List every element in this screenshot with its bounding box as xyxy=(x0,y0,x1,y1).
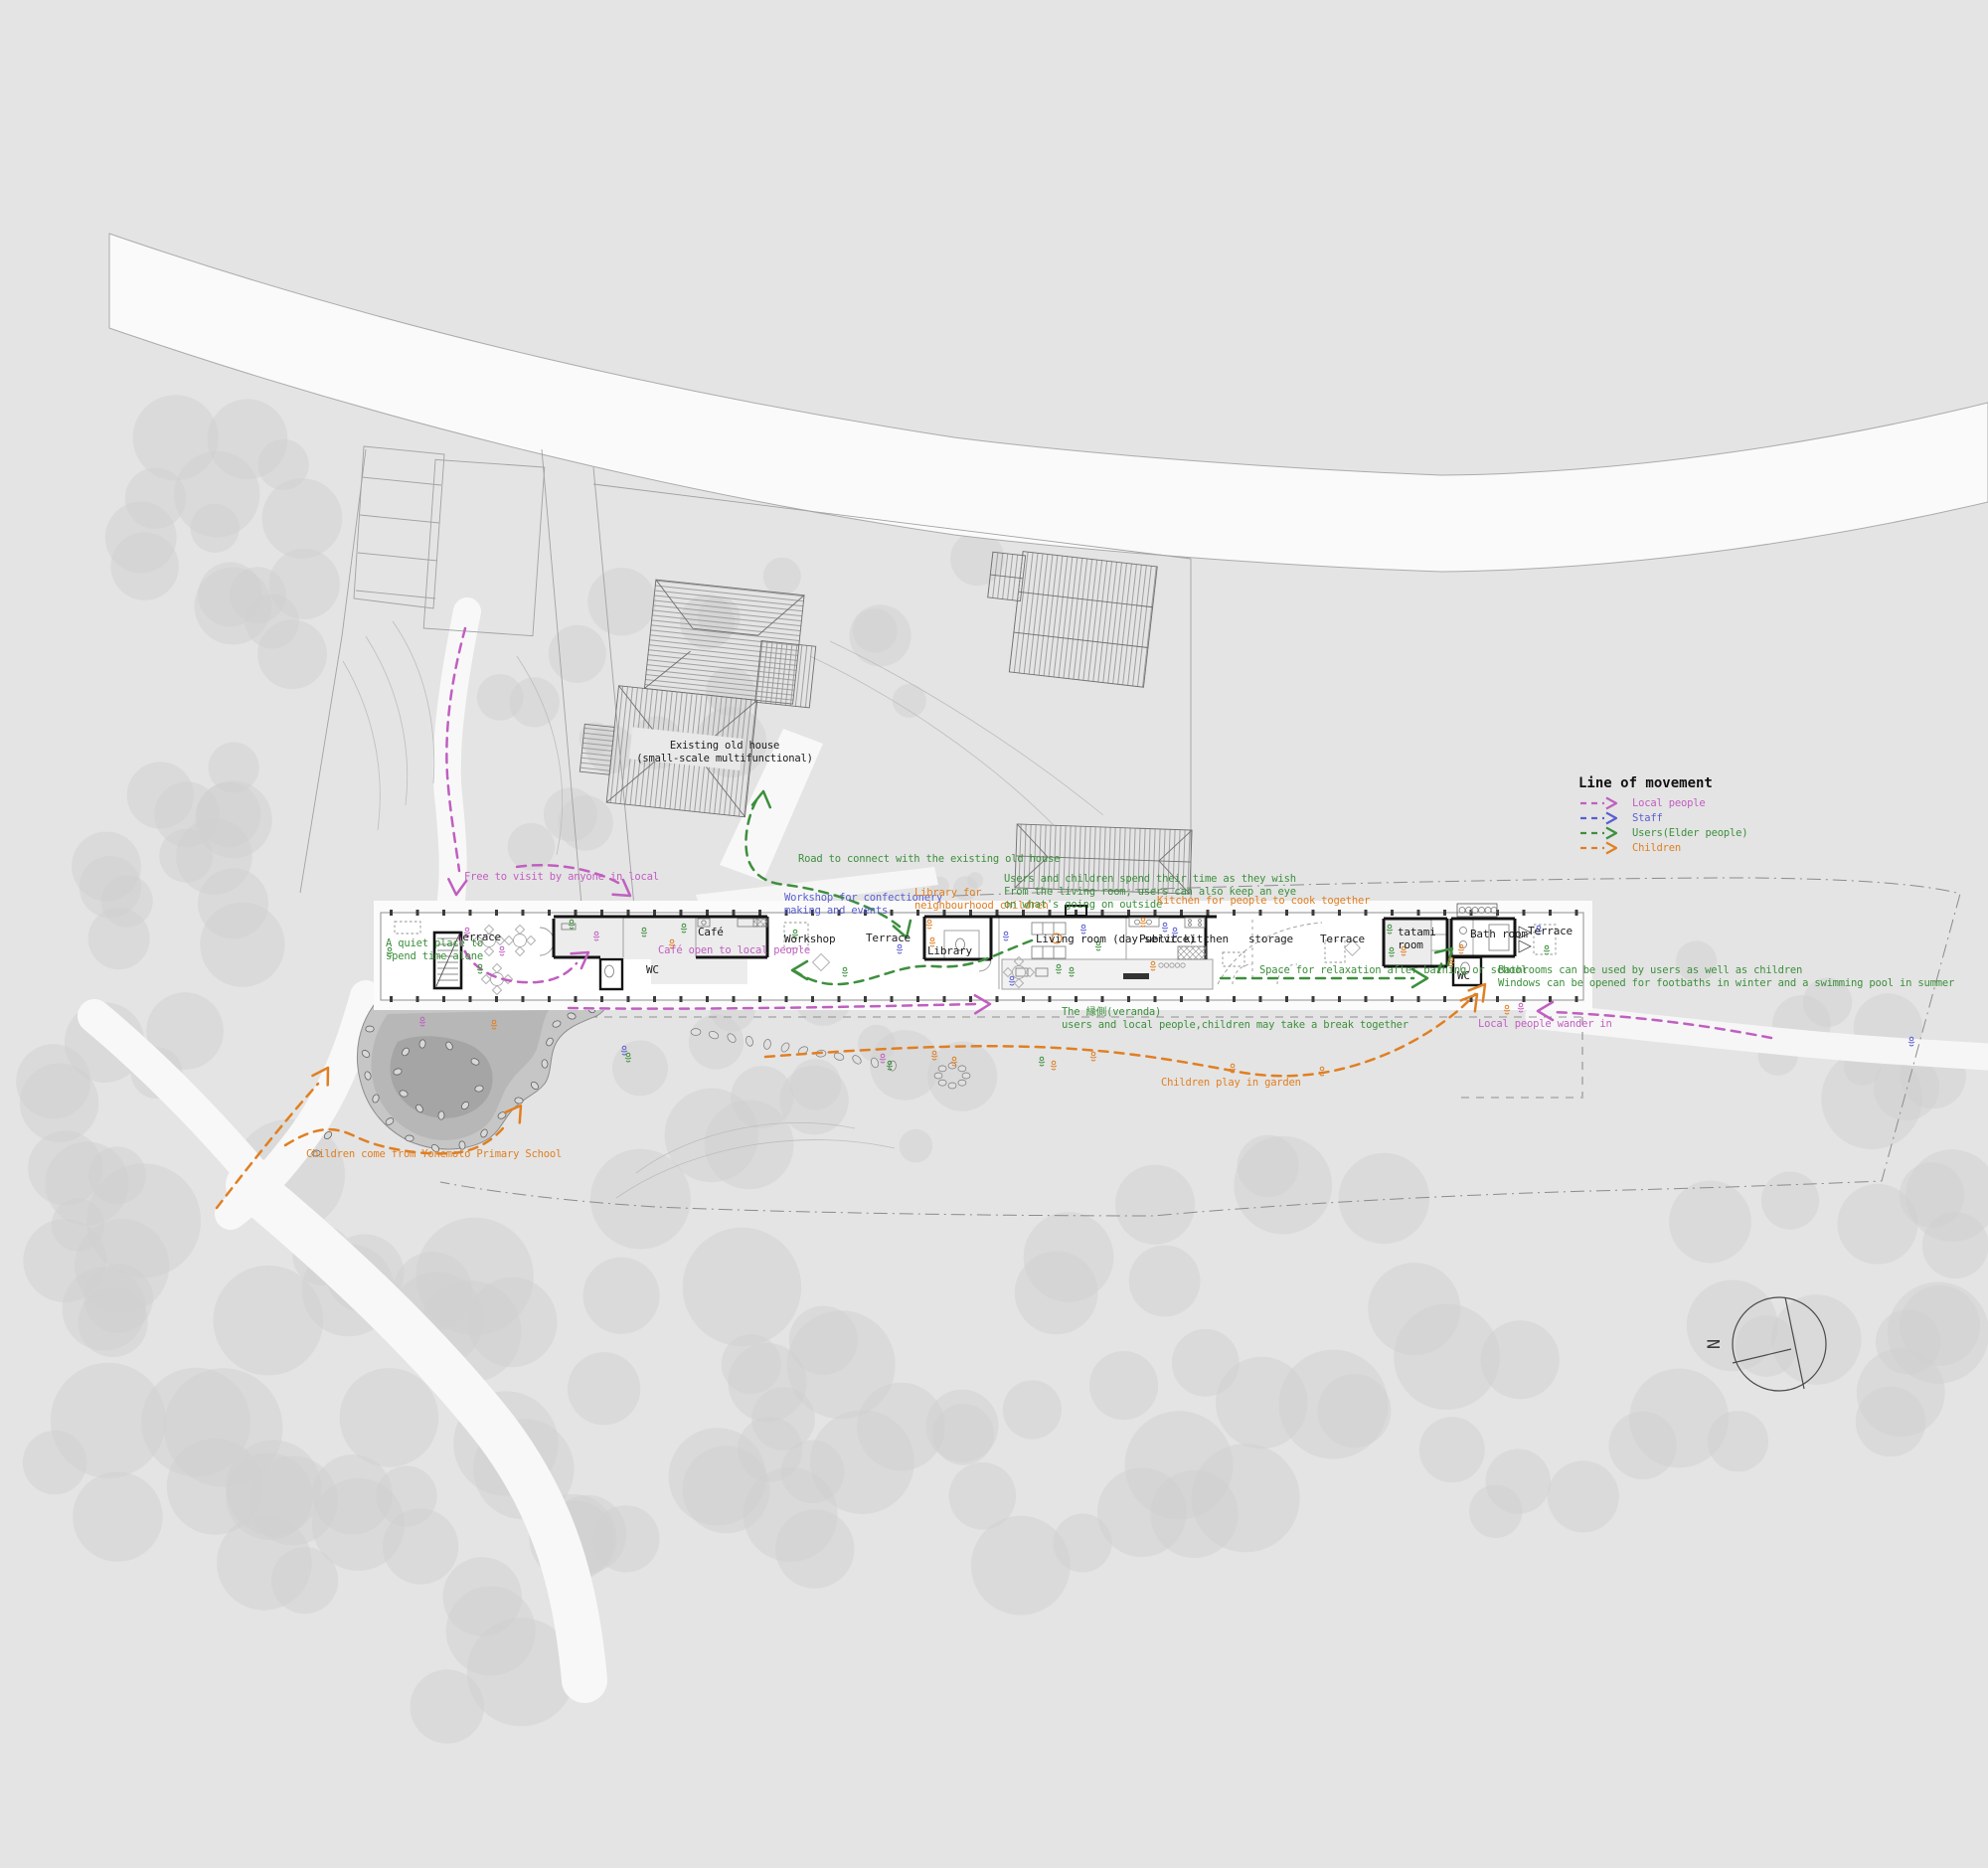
dashed-arrow-icon xyxy=(1578,811,1622,825)
legend-item-users: Users(Elder people) xyxy=(1578,825,1747,840)
dashed-arrow-icon xyxy=(1578,796,1622,810)
north-label: N xyxy=(1705,1339,1725,1349)
path-to-building xyxy=(447,611,467,913)
main-building xyxy=(374,901,1592,1010)
legend-label: Users(Elder people) xyxy=(1632,827,1747,839)
legend-item-children: Children xyxy=(1578,840,1747,855)
person-icon xyxy=(1039,1057,1045,1066)
legend-label: Staff xyxy=(1632,812,1663,824)
dashed-arrow-icon xyxy=(1578,841,1622,855)
person-icon xyxy=(1051,1061,1057,1070)
legend-item-staff: Staff xyxy=(1578,810,1747,825)
legend: Line of movement Local peopleStaffUsers(… xyxy=(1578,775,1747,855)
legend-item-local: Local people xyxy=(1578,795,1747,810)
person-icon xyxy=(1090,1052,1096,1061)
legend-label: Children xyxy=(1632,842,1681,854)
main-road xyxy=(109,234,1988,572)
barn-roof xyxy=(980,548,1158,687)
shed-roof xyxy=(1015,824,1192,894)
site-plan: N TerraceCaféWCWorkshopTerraceLibraryLiv… xyxy=(0,0,1988,1864)
existing-buildings xyxy=(577,548,1192,894)
legend-label: Local people xyxy=(1632,797,1705,809)
legend-title: Line of movement xyxy=(1578,775,1747,791)
dashed-arrow-icon xyxy=(1578,826,1622,840)
site-plan-drawing: N xyxy=(0,0,1988,1864)
